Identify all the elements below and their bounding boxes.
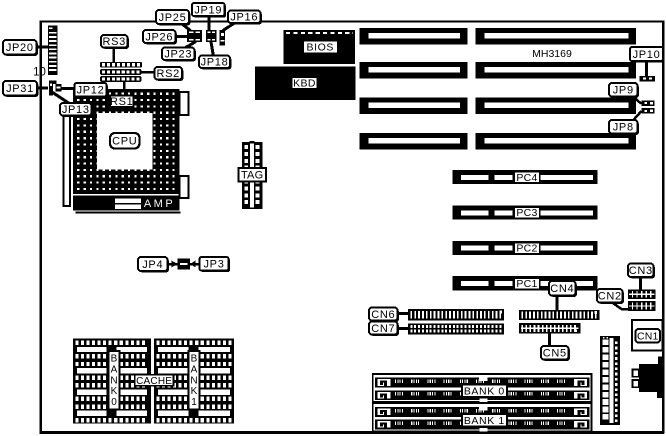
svg-text:JP16: JP16: [230, 12, 258, 24]
svg-text:JP31: JP31: [6, 83, 34, 95]
svg-text:BIOS: BIOS: [307, 41, 335, 53]
svg-text:CN4: CN4: [550, 283, 574, 295]
svg-text:PC1: PC1: [516, 278, 537, 290]
svg-text:BANK 0: BANK 0: [464, 386, 505, 398]
svg-text:JP8: JP8: [613, 122, 634, 134]
svg-text:PC4: PC4: [516, 172, 537, 184]
svg-text:A: A: [111, 364, 118, 375]
svg-text:RS2: RS2: [157, 68, 181, 80]
svg-text:0: 0: [111, 397, 117, 408]
svg-text:PC3: PC3: [516, 207, 537, 219]
svg-text:JP20: JP20: [6, 42, 34, 54]
svg-text:CN6: CN6: [371, 309, 395, 321]
svg-text:RS1: RS1: [110, 96, 134, 108]
svg-text:B: B: [111, 354, 118, 365]
svg-text:A: A: [191, 364, 198, 375]
svg-text:JP19: JP19: [194, 4, 222, 16]
svg-text:CACHE: CACHE: [136, 376, 172, 387]
svg-text:BANK 1: BANK 1: [464, 415, 505, 427]
svg-text:N: N: [110, 375, 117, 386]
svg-text:JP10: JP10: [633, 49, 661, 61]
svg-text:JP18: JP18: [201, 57, 229, 69]
svg-text:PC2: PC2: [516, 243, 537, 255]
svg-text:TAG: TAG: [241, 170, 263, 182]
svg-text:JP9: JP9: [613, 85, 634, 97]
svg-text:RS3: RS3: [103, 36, 127, 48]
svg-text:JP13: JP13: [62, 104, 90, 116]
svg-text:JP25: JP25: [159, 12, 187, 24]
svg-text:1: 1: [191, 397, 197, 408]
svg-text:JP12: JP12: [77, 85, 105, 97]
svg-text:CN7: CN7: [371, 323, 395, 335]
svg-text:K: K: [191, 386, 198, 397]
svg-text:CN5: CN5: [543, 348, 567, 360]
svg-text:MH3169: MH3169: [532, 48, 572, 60]
svg-text:JP4: JP4: [142, 259, 163, 271]
svg-text:B: B: [191, 354, 198, 365]
svg-text:JP23: JP23: [164, 49, 192, 61]
svg-text:10: 10: [33, 67, 46, 79]
svg-text:CN3: CN3: [629, 265, 653, 277]
svg-text:CPU: CPU: [112, 136, 137, 148]
svg-text:K: K: [111, 386, 118, 397]
svg-text:N: N: [190, 375, 197, 386]
svg-text:JP26: JP26: [145, 31, 173, 43]
svg-text:JP3: JP3: [203, 259, 224, 271]
svg-text:AMP: AMP: [144, 198, 175, 210]
svg-text:CN2: CN2: [598, 291, 622, 303]
svg-text:KBD: KBD: [293, 77, 316, 89]
svg-text:CN1: CN1: [637, 331, 659, 343]
